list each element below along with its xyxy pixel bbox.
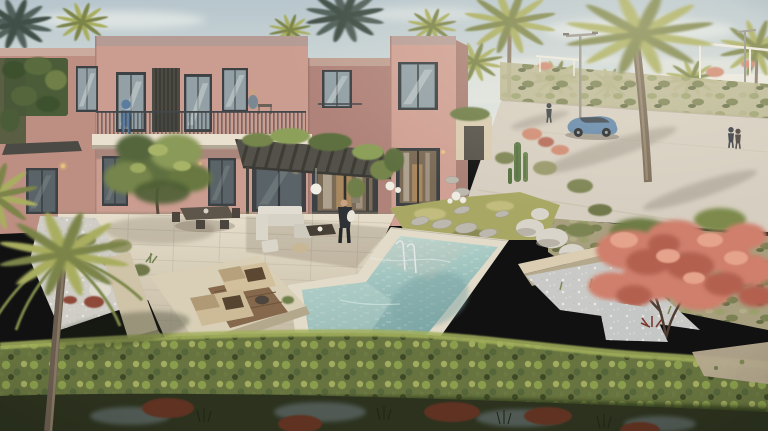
vignette: [0, 0, 768, 431]
villa-pool-render: [0, 0, 768, 431]
